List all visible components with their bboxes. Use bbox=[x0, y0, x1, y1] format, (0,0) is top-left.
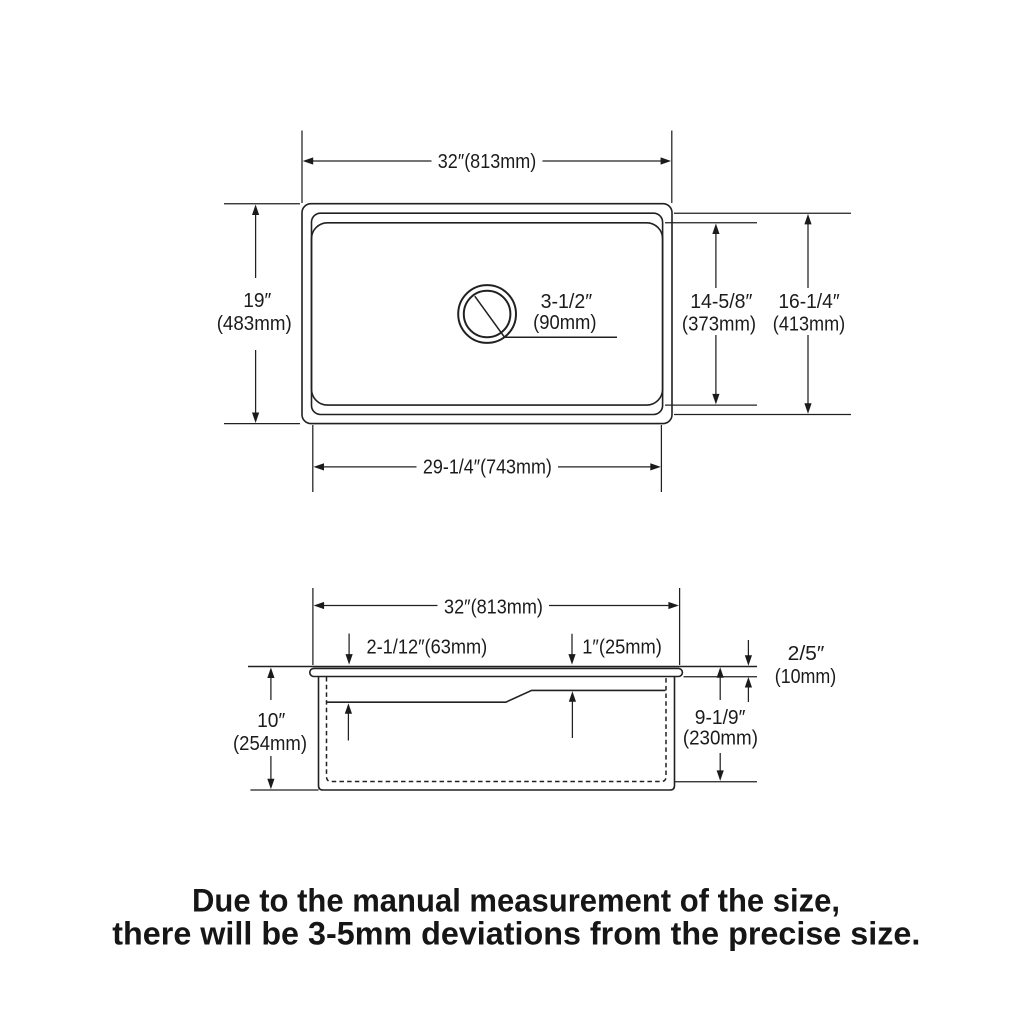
svg-text:29-1/4″(743mm): 29-1/4″(743mm) bbox=[423, 455, 552, 478]
svg-text:there will be 3-5mm deviations: there will be 3-5mm deviations from the … bbox=[112, 915, 920, 951]
svg-text:9-1/9″: 9-1/9″ bbox=[695, 706, 746, 729]
svg-text:(254mm): (254mm) bbox=[233, 732, 307, 755]
svg-text:2/5″: 2/5″ bbox=[788, 642, 825, 665]
svg-text:(230mm): (230mm) bbox=[683, 727, 758, 750]
svg-text:Due to the manual measurement: Due to the manual measurement of the siz… bbox=[192, 883, 840, 919]
svg-text:2-1/12″(63mm): 2-1/12″(63mm) bbox=[367, 636, 488, 659]
svg-text:14-5/8″: 14-5/8″ bbox=[690, 290, 752, 313]
svg-text:19″: 19″ bbox=[243, 289, 271, 312]
svg-text:32″(813mm): 32″(813mm) bbox=[438, 150, 536, 173]
svg-text:(413mm): (413mm) bbox=[773, 313, 845, 336]
svg-text:(10mm): (10mm) bbox=[775, 665, 837, 688]
svg-text:10″: 10″ bbox=[257, 709, 285, 732]
svg-text:3-1/2″: 3-1/2″ bbox=[541, 290, 593, 313]
svg-text:1″(25mm): 1″(25mm) bbox=[582, 635, 662, 658]
svg-text:(373mm): (373mm) bbox=[682, 313, 756, 336]
svg-text:16-1/4″: 16-1/4″ bbox=[778, 290, 839, 313]
svg-text:(90mm): (90mm) bbox=[533, 311, 596, 334]
svg-text:32″(813mm): 32″(813mm) bbox=[444, 595, 543, 618]
svg-text:(483mm): (483mm) bbox=[217, 312, 292, 335]
